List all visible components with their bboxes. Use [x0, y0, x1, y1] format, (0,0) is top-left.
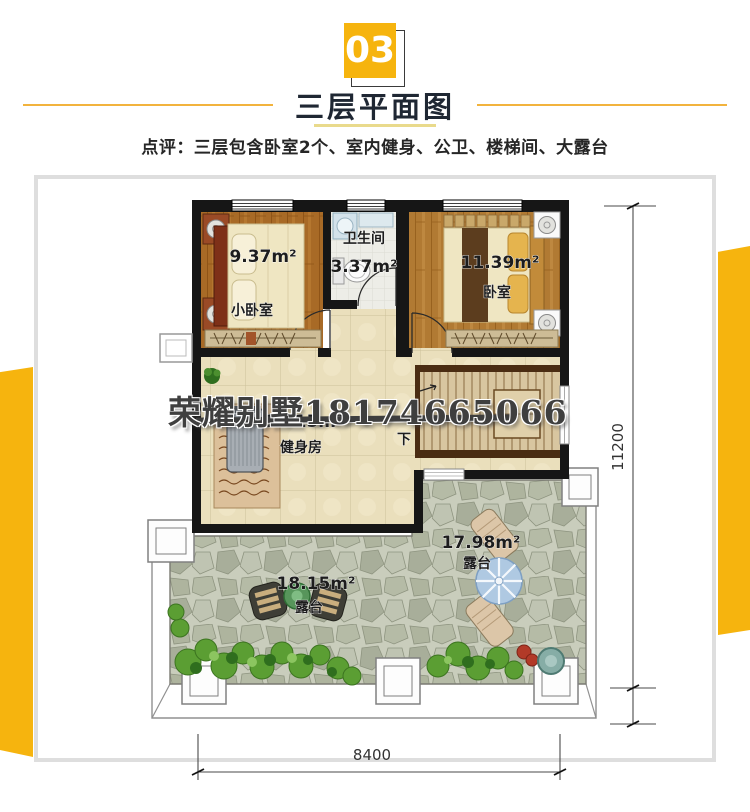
page: 03 三层平面图 点评：三层包含卧室2个、室内健身、公卫、楼梯间、大露台: [0, 0, 750, 812]
stair-down-label: 下: [397, 432, 411, 448]
dimension-vertical-label: 11200: [609, 423, 627, 471]
room-label-bathroom-name: 卫生间: [343, 230, 385, 247]
room-label-bedroom-area: 11.39m²: [461, 253, 540, 273]
room-label-terrace-right-area: 17.98m²: [442, 533, 521, 553]
room-label-terrace-left-area: 18.15m²: [277, 574, 356, 594]
small-bedroom-furniture: [203, 214, 321, 347]
room-label-terrace-left-name: 露台: [295, 599, 323, 616]
room-label-bedroom-name: 卧室: [483, 284, 511, 301]
room-label-small-bedroom-area: 9.37m²: [229, 247, 296, 267]
room-label-bathroom-area: 3.37m²: [330, 257, 397, 277]
room-label-terrace-right-name: 露台: [463, 555, 491, 572]
room-label-small-bedroom-name: 小卧室: [231, 302, 273, 319]
room-label-gym-name: 健身房: [280, 439, 322, 456]
watermark-text: 荣耀别墅18174665066: [168, 386, 568, 434]
dimension-horizontal-label: 8400: [353, 746, 391, 764]
